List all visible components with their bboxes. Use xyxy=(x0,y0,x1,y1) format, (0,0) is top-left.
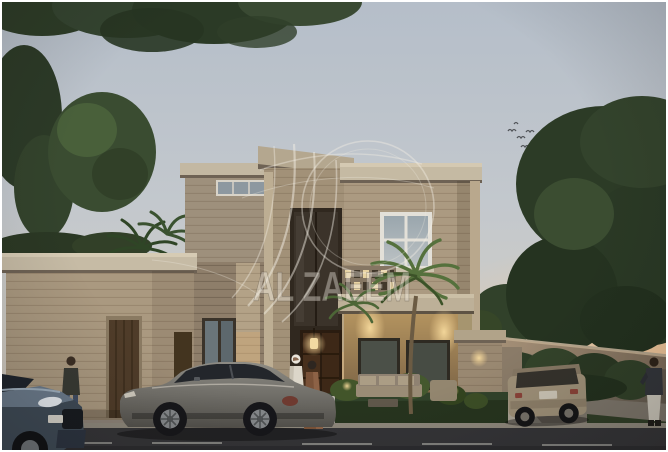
sedan-mirror xyxy=(194,377,200,381)
gate-sconce xyxy=(470,349,488,367)
sedan-taillight xyxy=(282,396,298,406)
clerestory-window xyxy=(216,180,266,196)
left-round-tree xyxy=(48,92,156,212)
watermark-text: AL ZAEEM xyxy=(253,263,411,310)
suv-plate xyxy=(48,415,63,423)
coffee-table xyxy=(368,399,398,407)
beige-suv xyxy=(503,364,589,428)
property-photo[interactable]: AL ZAEEM xyxy=(0,0,668,452)
suv-rear-plate xyxy=(539,391,557,400)
upper-left-block xyxy=(180,163,278,266)
